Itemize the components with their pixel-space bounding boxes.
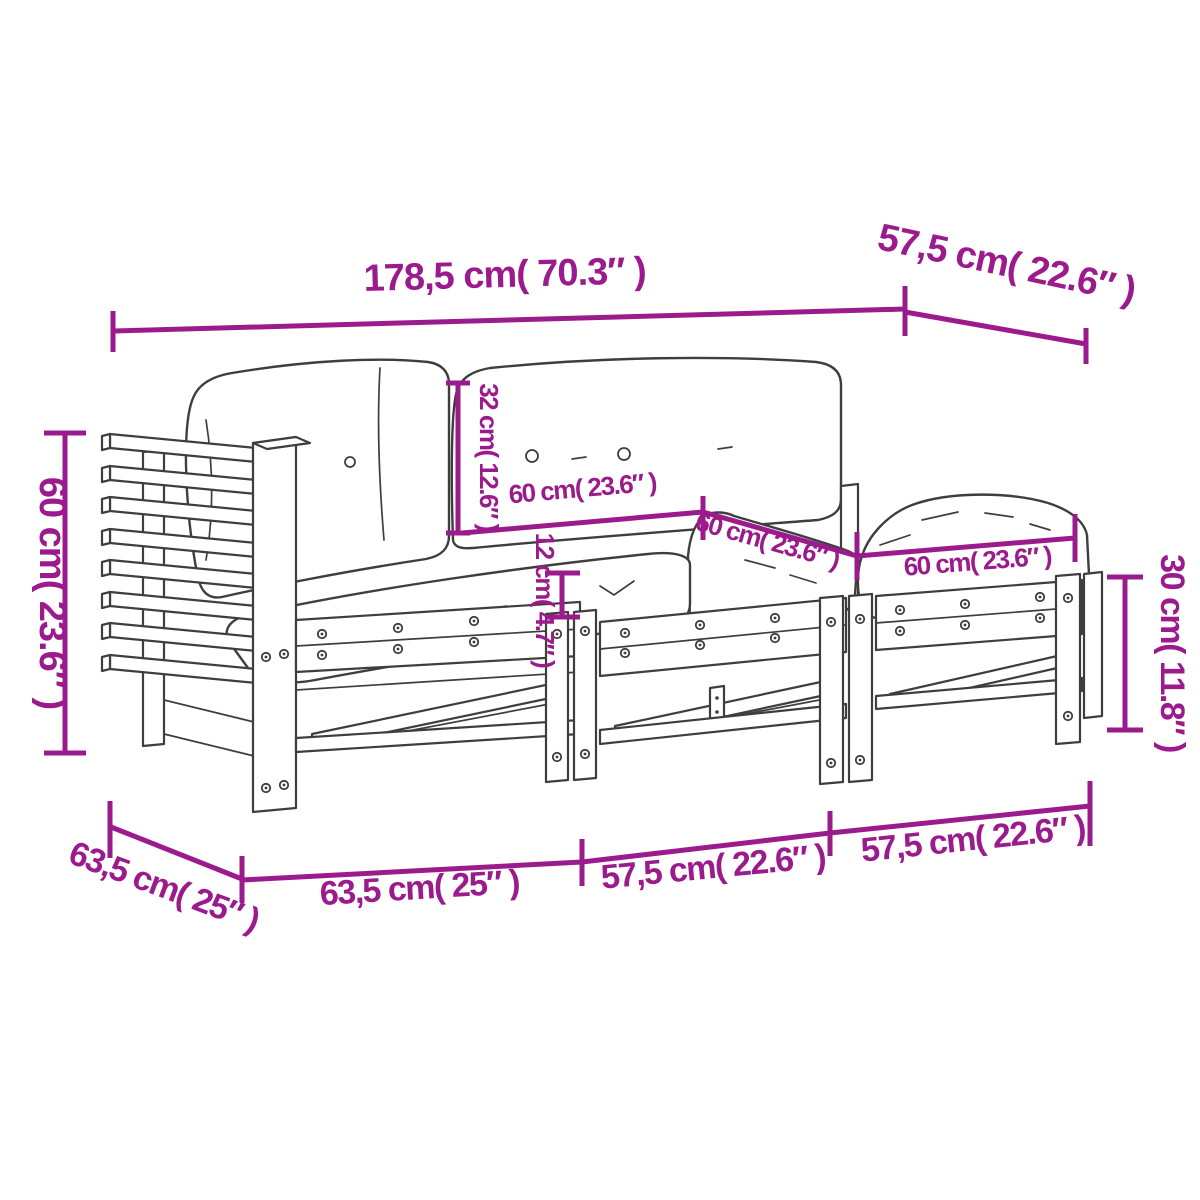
side-rail [164, 700, 254, 722]
overall-depth-label: 57,5 cm( 22.6″ ) [874, 216, 1139, 312]
screw-dot [699, 624, 702, 627]
screw-dot [899, 609, 902, 612]
dim-line-overall-depth [905, 312, 1086, 344]
slat-end-cap [102, 560, 110, 576]
slat-end-cap [102, 529, 110, 545]
screw-dot [774, 637, 777, 640]
screw-dot [1039, 617, 1042, 620]
screw-dot [584, 753, 587, 756]
screw-dot [473, 620, 476, 623]
screw-dot [1067, 597, 1070, 600]
screw-dot [584, 630, 587, 633]
screw-dot [699, 644, 702, 647]
corner-section-width-label: 63,5 cm( 25″ ) [319, 863, 521, 913]
screw-dot [715, 696, 719, 700]
overall-width-label: 178,5 cm( 70.3″ ) [363, 250, 646, 300]
screw-dot [964, 603, 967, 606]
slat-end-cap [102, 655, 110, 671]
cushion-button [618, 448, 630, 460]
screw-dot [964, 624, 967, 627]
middle-back-cushion-body [452, 358, 841, 548]
screw-dot [774, 617, 777, 620]
stool-height-label: 30 cm( 11.8″ ) [1153, 554, 1191, 752]
screw-dot [624, 652, 627, 655]
cushion-button [526, 450, 538, 462]
dim-line-overall-width [113, 309, 905, 331]
screw-dot [265, 656, 268, 659]
furniture [102, 358, 1102, 812]
screw-dot [859, 618, 862, 621]
screw-dot [321, 633, 324, 636]
screw-dot [624, 632, 627, 635]
screw-dot [473, 641, 476, 644]
slat-end-cap [102, 497, 110, 513]
slat-end-cap [102, 434, 110, 450]
slat-end-cap [102, 466, 110, 482]
furniture-dimension-drawing: 178,5 cm( 70.3″ ) 57,5 cm( 22.6″ ) 60 cm… [0, 0, 1200, 1200]
screw-dot [397, 627, 400, 630]
screw-dot [1067, 715, 1070, 718]
middle-back-cushion [452, 358, 841, 548]
slat-end-cap [102, 623, 110, 639]
middle-section-frame [600, 594, 872, 784]
screw-dot [397, 648, 400, 651]
corner-post-board [253, 437, 296, 812]
screw-dot [899, 630, 902, 633]
screw-dot [283, 653, 286, 656]
cushion-button [345, 457, 355, 467]
screw-dot [1039, 596, 1042, 599]
screw-dot [859, 759, 862, 762]
screw-dot [265, 787, 268, 790]
rear-leg [1084, 572, 1102, 718]
slatted-side-panel [102, 434, 267, 756]
stool-frame [876, 572, 1102, 744]
side-rail [164, 734, 254, 756]
back-cushion-height-label: 32 cm( 12.6″ ) [474, 383, 504, 531]
slat-end-cap [102, 592, 110, 608]
slat [110, 592, 267, 621]
dimension-diagram: 178,5 cm( 70.3″ ) 57,5 cm( 22.6″ ) 60 cm… [0, 0, 1200, 1200]
screw-dot [556, 756, 559, 759]
seat-cushion-thickness-label: 12 cm( 4.7″ ) [530, 533, 560, 668]
screw-dot [830, 621, 833, 624]
screw-dot [321, 654, 324, 657]
screw-dot [283, 784, 286, 787]
screw-dot [715, 710, 719, 714]
screw-dot [830, 762, 833, 765]
overall-height-label: 60 cm( 23.6″ ) [31, 477, 73, 709]
